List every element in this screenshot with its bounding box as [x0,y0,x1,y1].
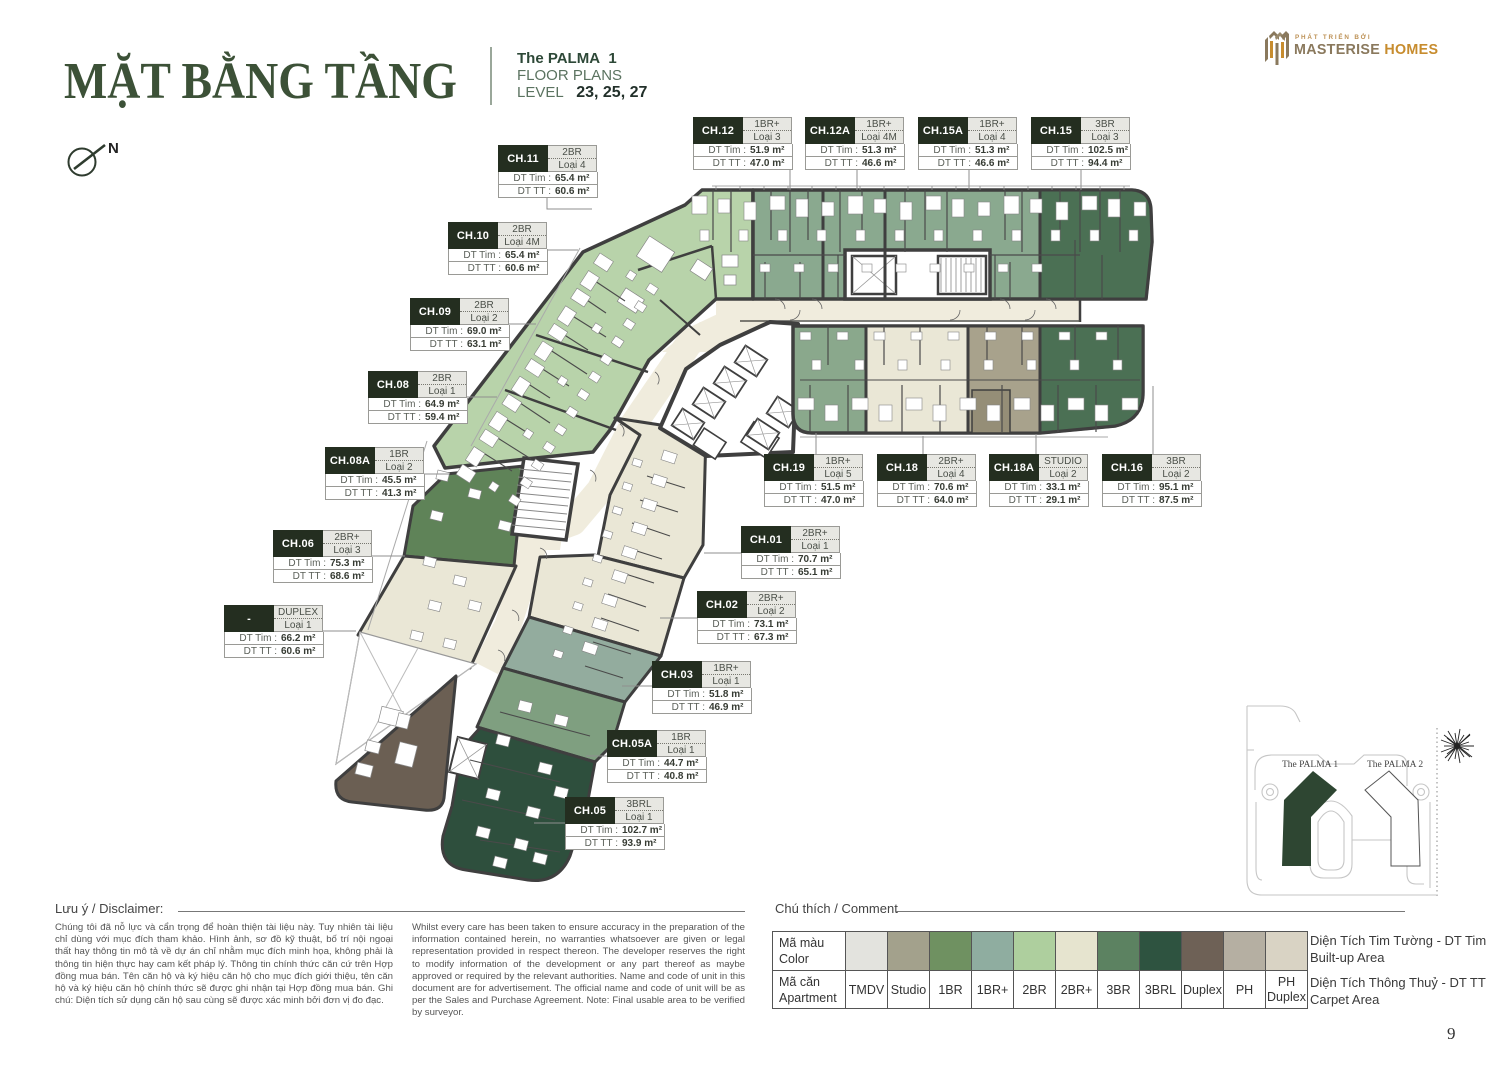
svg-text:The PALMA 2: The PALMA 2 [1367,760,1423,770]
svg-text:The PALMA 1: The PALMA 1 [1282,760,1338,770]
